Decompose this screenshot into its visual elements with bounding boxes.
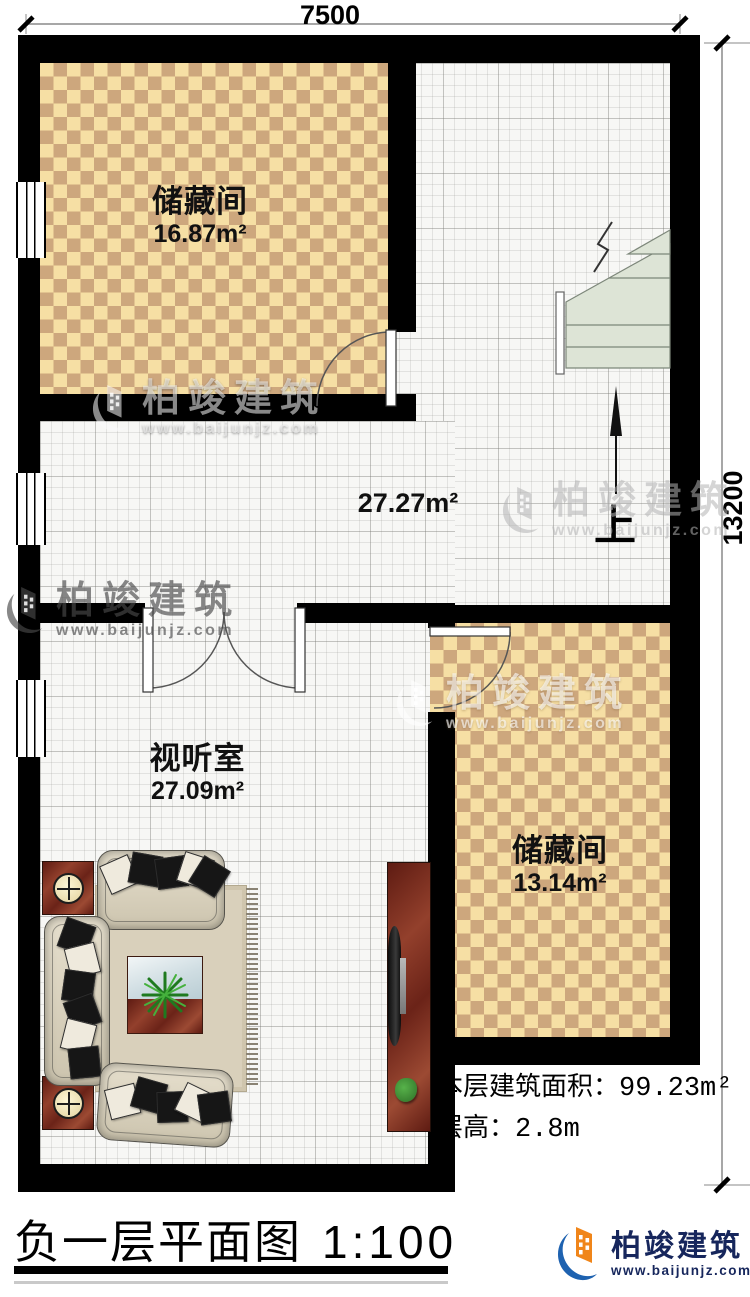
brand-url: www.baijunjz.com bbox=[611, 1263, 750, 1278]
room-label-storage-top: 储藏间 16.87m² bbox=[90, 185, 310, 248]
loveseat-top bbox=[97, 850, 225, 930]
storage-room-bottom-floor bbox=[430, 623, 670, 1037]
coffee-table bbox=[127, 956, 203, 1034]
wall-storage-bottom-bottom bbox=[428, 1037, 700, 1065]
floor-plan-canvas: 7500 13200 储藏间 16.87m² 27.27m² 视听室 27.09… bbox=[0, 0, 750, 1297]
floor-height-note: 层高：2.8m bbox=[437, 1109, 732, 1150]
brand-name: 柏竣建筑 bbox=[611, 1230, 750, 1263]
table-lamp-icon bbox=[53, 873, 84, 904]
wall-right bbox=[670, 35, 700, 1065]
plan-title-text: 负一层平面图 bbox=[14, 1216, 302, 1268]
room-label-hall: 27.27m² bbox=[323, 488, 493, 518]
stairs-up-label: 上 bbox=[594, 492, 636, 553]
floor-area-note: 本层建筑面积：99.23m² bbox=[437, 1068, 732, 1109]
plan-title: 负一层平面图1:100 bbox=[14, 1206, 457, 1272]
wall-storage-bottom-top bbox=[455, 605, 700, 623]
brand-logo-icon bbox=[548, 1222, 602, 1286]
window-top-left bbox=[16, 182, 46, 258]
brand-logo: 柏竣建筑 www.baijunjz.com bbox=[548, 1222, 750, 1286]
window-middle-left bbox=[16, 473, 46, 545]
wall-top bbox=[18, 35, 700, 63]
wall-storage-top-bottom bbox=[18, 394, 416, 421]
room-label-av-room: 视听室 27.09m² bbox=[95, 742, 300, 805]
dimension-width: 7500 bbox=[250, 0, 410, 31]
room-label-storage-bottom: 储藏间 13.14m² bbox=[455, 834, 665, 897]
dimension-line-right bbox=[704, 36, 750, 1192]
wall-divider-upper bbox=[428, 605, 455, 628]
wall-hall-av-left bbox=[40, 603, 145, 623]
tv-stand bbox=[400, 958, 406, 1014]
floor-notes: 本层建筑面积：99.23m² 层高：2.8m bbox=[437, 1068, 732, 1150]
sofa-bottom bbox=[95, 1061, 234, 1148]
plan-scale: 1:100 bbox=[322, 1216, 457, 1268]
window-bottom-left bbox=[16, 680, 46, 757]
rug-fringe bbox=[246, 888, 258, 1088]
potted-plant-icon bbox=[139, 969, 191, 1021]
side-table-top bbox=[42, 861, 94, 915]
table-lamp-icon bbox=[53, 1088, 84, 1119]
wall-storage-top-right bbox=[388, 35, 416, 332]
wall-bottom bbox=[18, 1164, 455, 1192]
title-underline-light bbox=[14, 1281, 448, 1284]
sofa-left bbox=[44, 916, 110, 1086]
title-underline bbox=[14, 1266, 448, 1274]
dimension-height: 13200 bbox=[718, 453, 746, 563]
